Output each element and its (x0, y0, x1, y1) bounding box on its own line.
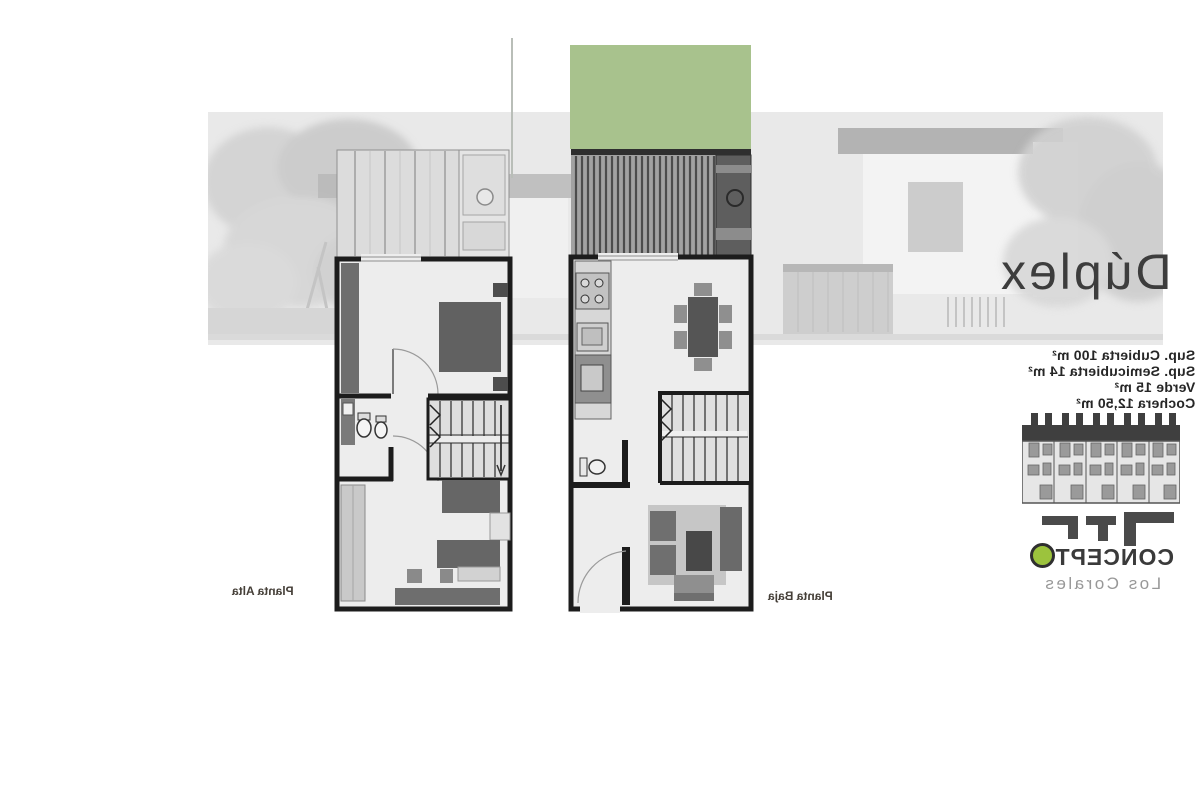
brand-green-o-icon: O (1030, 543, 1055, 568)
nightstand (493, 283, 508, 297)
coffee-table-icon (686, 531, 712, 571)
planta-baja-label: Planta Baja (768, 589, 833, 603)
stove-icon (581, 279, 589, 287)
wardrobe (341, 263, 359, 393)
brand-name-main: CONCEPT (1055, 544, 1174, 570)
sink-icon (582, 328, 602, 345)
planta-alta-floorplan (333, 147, 513, 613)
planta-alta-label: Planta Alta (232, 584, 294, 598)
armchair-icon (650, 511, 676, 541)
units-row-thumbnail (1022, 413, 1180, 505)
concepto-logo-mark (1028, 508, 1174, 546)
bed-icon (442, 480, 500, 513)
bed-icon (439, 302, 501, 372)
planta-baja-floorplan (568, 147, 754, 613)
bed-icon (437, 540, 500, 568)
desk-icon (395, 588, 500, 605)
spec-line: Sup. Semicubierta 14 m² (1028, 363, 1195, 379)
sofa-icon (720, 507, 742, 571)
chair-icon (440, 569, 453, 583)
brand-tagline: Los Corales (1030, 574, 1174, 594)
spec-line: Sup. Cubierta 100 m² (1028, 347, 1195, 363)
armchair-icon (650, 545, 676, 575)
bidet-icon (375, 422, 387, 438)
stairs-icon (660, 393, 749, 483)
terrace (337, 150, 509, 257)
brand-wordmark: CONCEPTO (1030, 543, 1174, 571)
toilet-icon (357, 419, 371, 437)
page-title: Dúplex (998, 243, 1172, 301)
duplex-flyer: Planta Alta Planta Baja Dúplex Sup. Cubi… (0, 0, 1200, 801)
spec-line: Cochera 12,50 m² (1028, 395, 1195, 411)
grill-area (716, 155, 751, 257)
spec-line: Verde 15 m² (1028, 379, 1195, 395)
stairs-icon (428, 399, 510, 479)
toilet-icon (589, 460, 605, 474)
nightstand (493, 377, 508, 391)
surface-specs: Sup. Cubierta 100 m² Sup. Semicubierta 1… (1028, 347, 1195, 411)
chair-icon (407, 569, 422, 583)
garden-area (570, 45, 751, 149)
sink-icon (477, 189, 493, 205)
kitchen (575, 261, 611, 419)
